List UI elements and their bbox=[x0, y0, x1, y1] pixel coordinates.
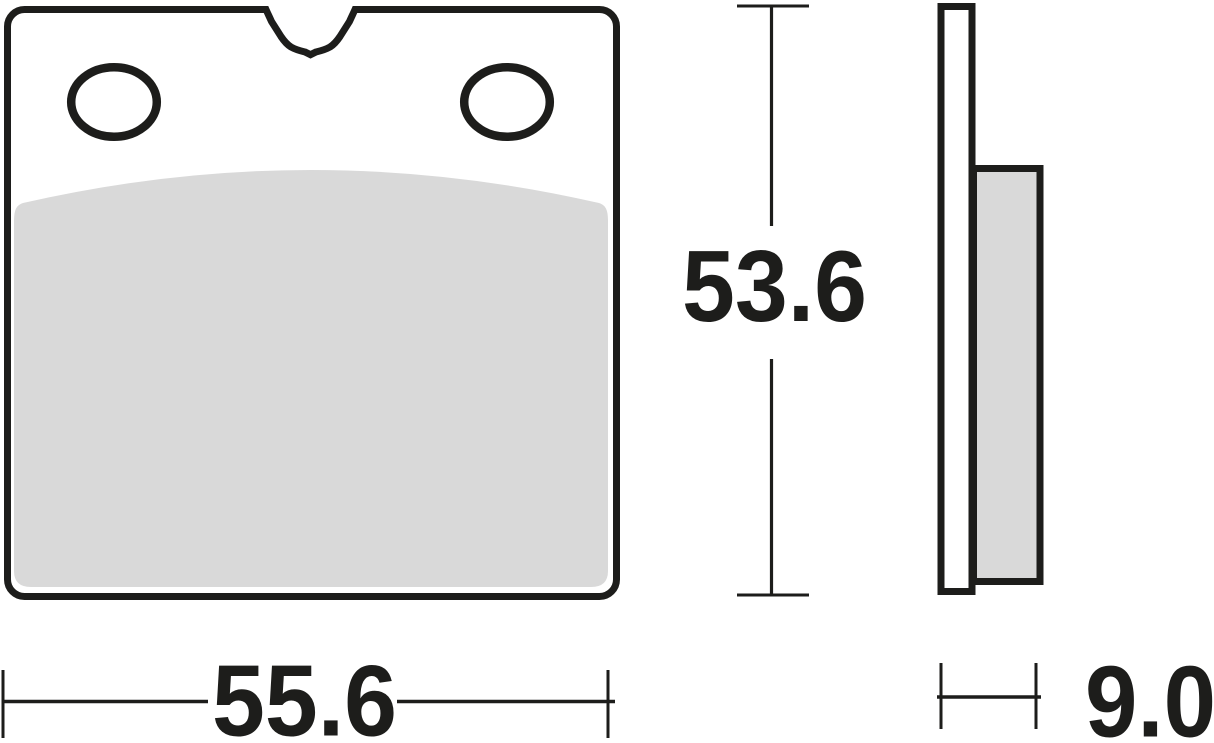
svg-text:53.6: 53.6 bbox=[682, 231, 867, 343]
svg-text:9.0: 9.0 bbox=[1085, 647, 1214, 743]
svg-text:55.6: 55.6 bbox=[212, 646, 397, 743]
